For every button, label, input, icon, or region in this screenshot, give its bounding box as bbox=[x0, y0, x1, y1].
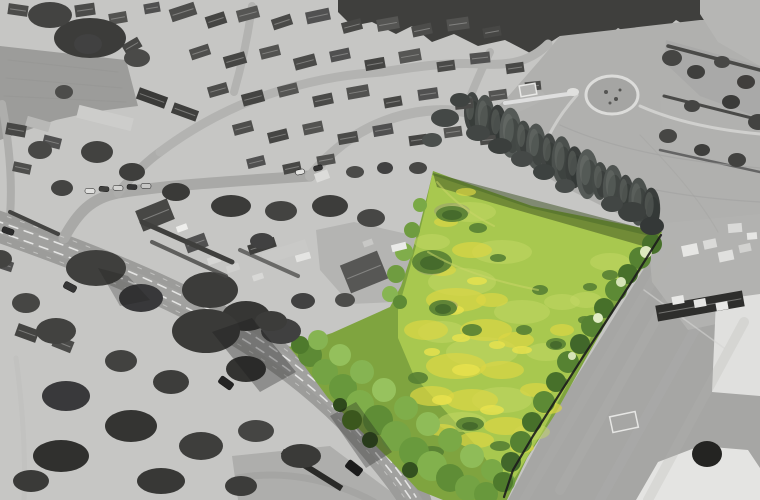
aerial-photo bbox=[0, 0, 760, 500]
car bbox=[113, 185, 123, 191]
car bbox=[127, 184, 137, 189]
building bbox=[469, 51, 490, 64]
car bbox=[85, 188, 95, 194]
car bbox=[141, 183, 151, 188]
park-play-circle bbox=[586, 76, 638, 114]
aerial-photo-canvas bbox=[0, 0, 760, 500]
car bbox=[99, 186, 109, 192]
ground-marking bbox=[519, 83, 537, 97]
outbuilding bbox=[747, 232, 758, 240]
outbuilding bbox=[728, 223, 743, 233]
